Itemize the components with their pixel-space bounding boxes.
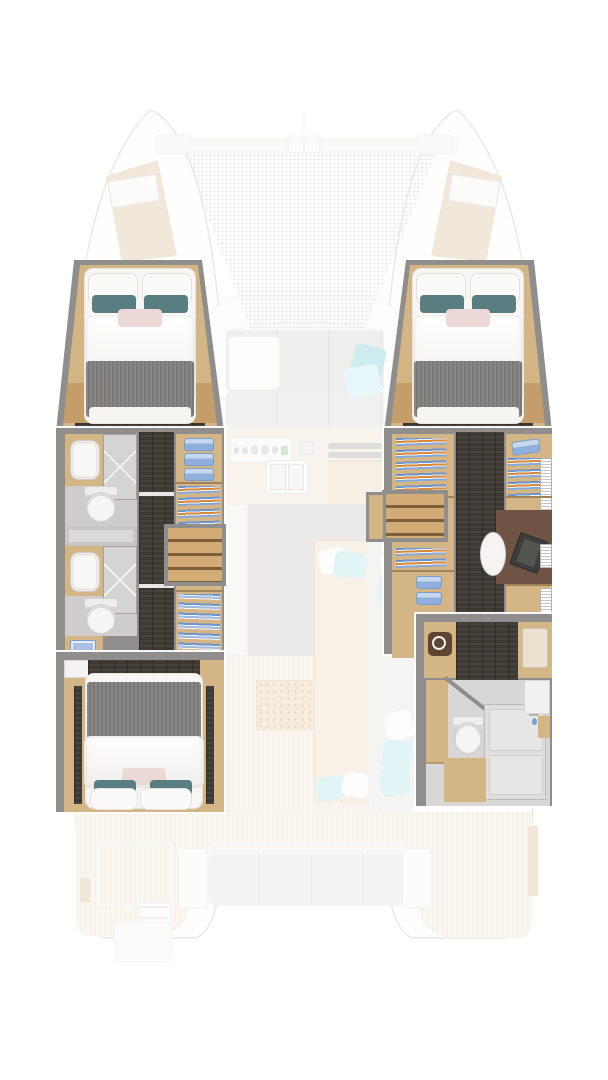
towel-stack <box>184 438 214 451</box>
laptop-screen <box>516 539 541 568</box>
port-forward-cabin <box>61 265 219 427</box>
bathroom-wood-strip <box>538 716 550 738</box>
catamaran-deck-plan <box>0 0 608 1080</box>
starboard-forward-cabin <box>389 265 547 427</box>
towel-stack <box>416 592 442 605</box>
pillow-white <box>90 788 138 810</box>
shelf-divider <box>506 584 552 586</box>
bathroom-cabinet <box>426 680 448 764</box>
shelf-divider <box>176 590 222 592</box>
vanity-basin <box>522 628 548 668</box>
book-shelf <box>540 544 552 568</box>
starboard-steps-landing <box>366 492 386 542</box>
towel-stack <box>184 468 214 481</box>
pillow-blush <box>118 309 162 327</box>
washbasin <box>70 552 100 592</box>
berth-foot-sheet <box>417 407 519 421</box>
bathroom-divider-panel <box>69 530 133 542</box>
hanging-locker <box>396 548 446 570</box>
shower-panel <box>489 755 543 795</box>
berth-foot-sheet <box>89 407 191 421</box>
book-shelf <box>540 588 552 614</box>
port-companionway-steps[interactable] <box>164 524 226 586</box>
shower-area <box>484 704 546 800</box>
corridor-floor <box>456 622 518 680</box>
shelf-divider <box>506 496 552 498</box>
washer-door-icon <box>432 636 446 650</box>
washing-machine[interactable] <box>428 632 452 656</box>
bathroom-bench <box>444 758 486 802</box>
toilet-bowl <box>454 722 482 754</box>
hanging-locker <box>396 438 446 496</box>
hanging-locker <box>178 594 220 656</box>
toilet-bowl <box>86 604 116 634</box>
shelf-divider <box>176 482 222 484</box>
shelf-divider <box>392 570 454 572</box>
door-threshold <box>139 492 174 496</box>
starboard-companionway-steps[interactable] <box>382 490 448 542</box>
port-aft-cabin-block <box>56 652 224 812</box>
side-floor <box>206 686 214 804</box>
desk-chair <box>480 532 506 576</box>
washbasin <box>70 440 100 480</box>
towel-stack <box>184 453 214 466</box>
pillow-white <box>140 788 192 810</box>
bathroom-shelf <box>524 680 550 714</box>
side-floor <box>74 686 82 804</box>
hanging-locker <box>178 486 220 528</box>
berth-blanket <box>87 682 201 742</box>
pillow-blush <box>446 309 490 327</box>
highlighted-interiors-layer <box>0 0 608 1080</box>
water-drop-icon <box>532 718 537 725</box>
towel-stack <box>416 576 442 589</box>
toilet-bowl <box>86 492 116 522</box>
starboard-aft-block <box>416 614 552 806</box>
hanging-rail <box>508 458 542 496</box>
